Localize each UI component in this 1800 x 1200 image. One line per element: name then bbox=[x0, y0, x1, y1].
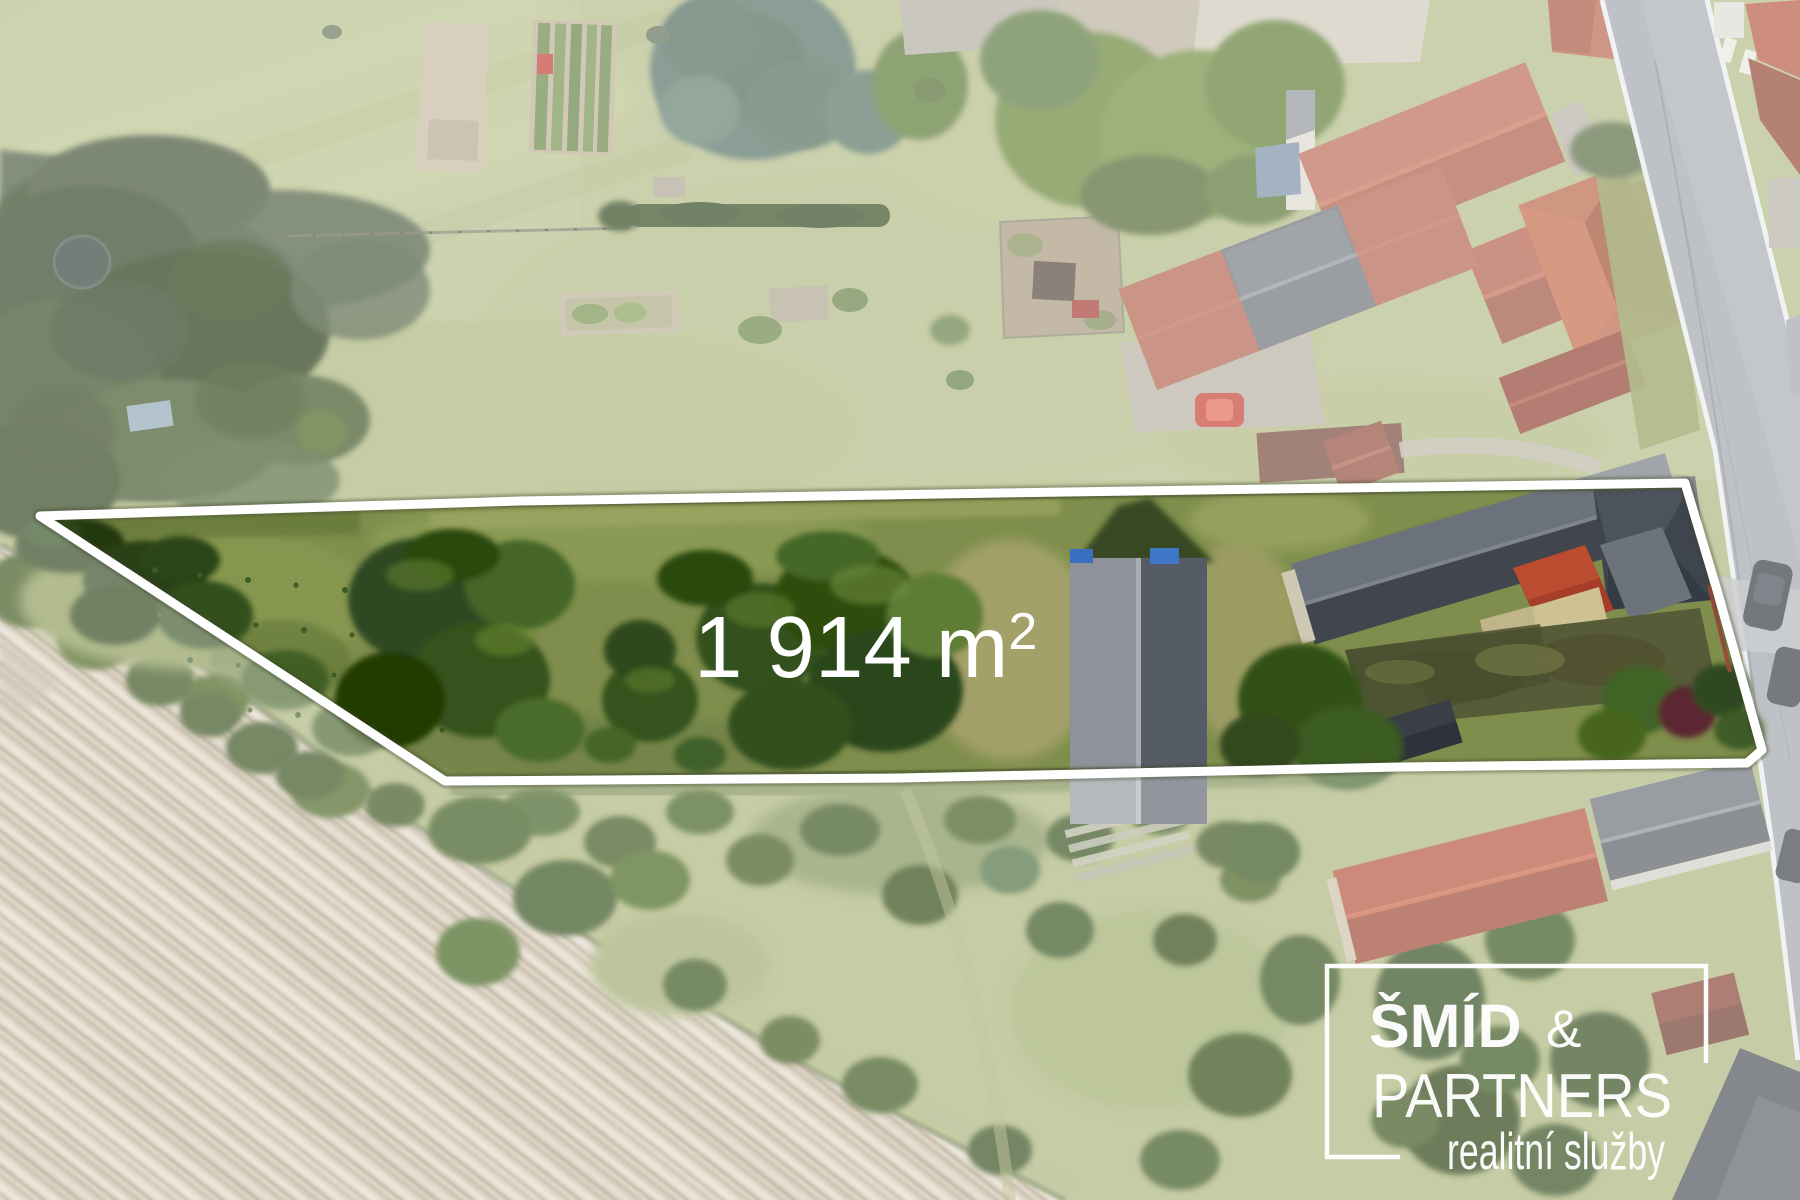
svg-text:ŠMÍD: ŠMÍD bbox=[1369, 992, 1522, 1060]
svg-text:&: & bbox=[1546, 1000, 1581, 1059]
svg-text:realitní služby: realitní služby bbox=[1447, 1123, 1665, 1181]
svg-text:PARTNERS: PARTNERS bbox=[1372, 1062, 1672, 1131]
svg-text:1 914 m2: 1 914 m2 bbox=[694, 599, 1037, 696]
